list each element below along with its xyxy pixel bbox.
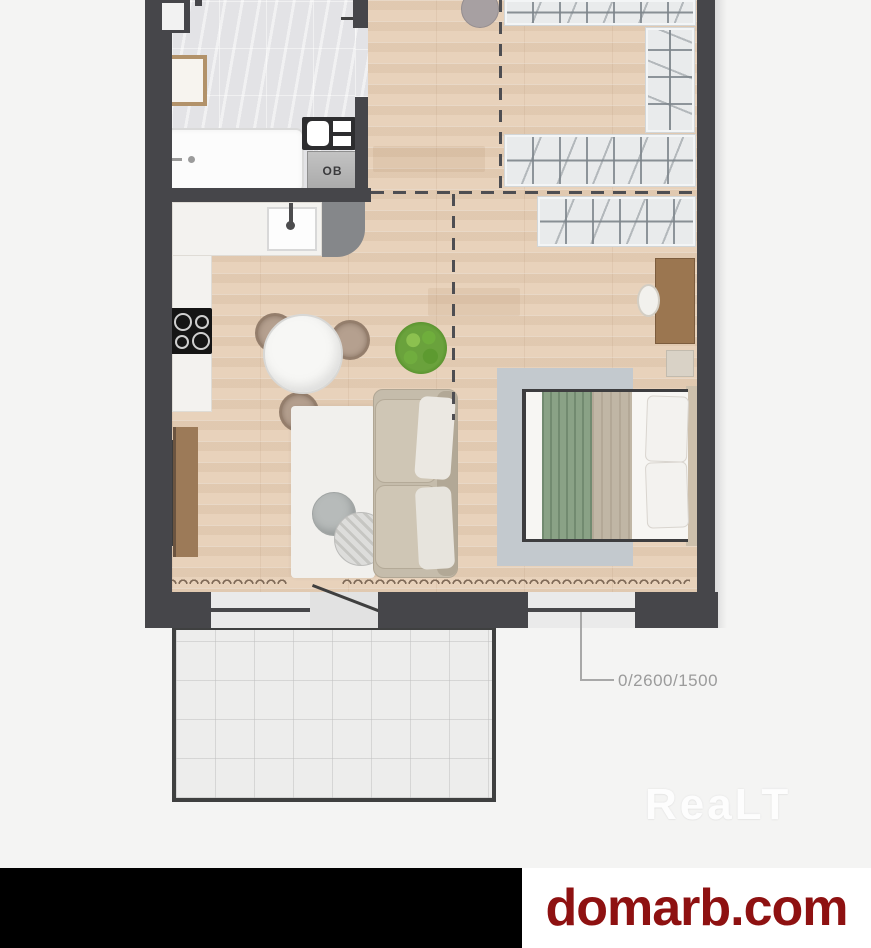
bathtub-drain [188,156,195,163]
bed-pillow [645,395,689,462]
partition-dashed-hall [499,0,502,190]
wall-left [145,0,172,628]
partition-dashed-bedroom [452,194,455,420]
sink-basin [307,121,329,146]
burner [195,315,209,329]
wall-bathroom-right-top [353,0,368,28]
wardrobe-unit [505,135,695,186]
cooktop [170,308,212,354]
plant [395,322,447,374]
drape-line [342,577,690,584]
bathtub [163,128,304,193]
wardrobe-unit [646,28,694,132]
banner-white-area: domarb.com [522,868,871,948]
bathroom-door-threshold [355,28,368,97]
dimension-leader-horizontal [580,679,614,681]
wardrobe-unit [538,197,695,246]
partition-dashed-horizontal [371,191,697,194]
washing-machine-label: OB [323,164,343,178]
sofa-pillow [414,396,456,480]
kitchen-faucet-head [286,221,295,230]
burner [192,332,210,350]
washing-machine: OB [307,151,358,190]
sideboard [173,427,198,557]
wardrobe-unit [505,0,695,25]
nightstand [666,350,694,377]
bed-pillow [645,461,689,528]
wall-bottom-middle [378,592,528,628]
sofa-pillow [415,486,455,570]
wall-bottom-left [145,592,211,628]
floor-plank-shade [428,288,520,316]
bed-blanket-green [542,392,592,539]
sofa [373,389,458,578]
bathroom-door-leaf [341,17,353,20]
wall-right-shadow [715,0,727,628]
wall-bathroom-right-bottom [355,97,368,192]
balcony-window-line [211,608,310,612]
bed [522,389,688,542]
realt-watermark: ReaLT [645,780,791,830]
balcony [172,626,496,802]
vanity-stool [637,284,660,317]
bathroom-sink-unit [302,117,356,150]
dining-table [263,314,343,394]
wall-bottom-right [635,592,718,628]
wall-niche [162,3,184,30]
wall-stub-dot [195,0,202,6]
floorplan-screenshot: OB [0,0,871,948]
drape-line [167,577,287,584]
bed-blanket-beige [592,392,632,539]
banner-black-area [0,868,522,948]
burner [175,335,189,349]
bathroom-cabinet [167,55,207,106]
floor-plank-shade [373,146,485,172]
dresser [655,258,695,344]
wall-right [697,0,715,628]
sink-shelf-top [333,121,351,132]
dimension-leader-vertical [580,612,582,681]
window-dimension-label: 0/2600/1500 [618,671,718,691]
site-logo-text: domarb.com [522,868,871,948]
sink-shelf-bottom [333,136,351,146]
wall-bathroom-bottom [145,188,371,202]
burner [174,313,192,331]
